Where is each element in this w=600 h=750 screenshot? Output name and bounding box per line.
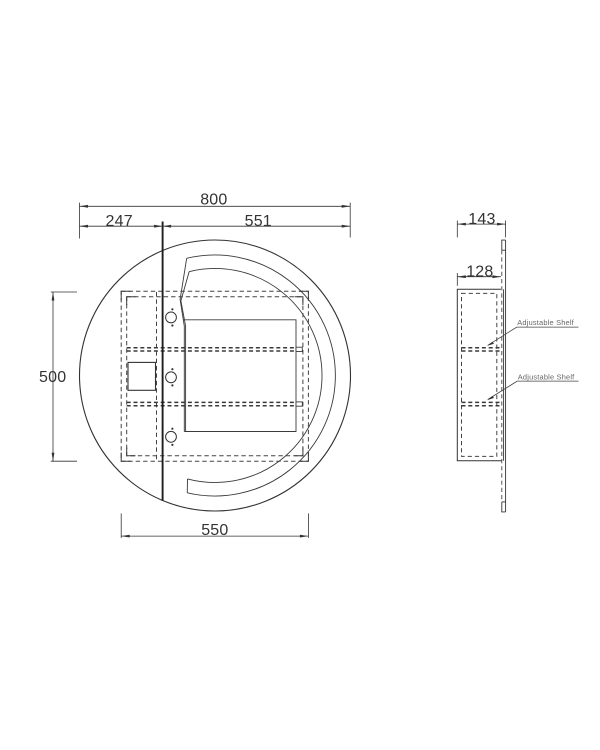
svg-text:128: 128: [466, 263, 493, 280]
svg-text:143: 143: [468, 211, 495, 228]
svg-text:551: 551: [245, 213, 272, 230]
svg-text:500: 500: [39, 369, 66, 386]
svg-text:Adjustable Shelf: Adjustable Shelf: [517, 318, 574, 327]
svg-text:247: 247: [106, 213, 133, 230]
svg-text:Adjustable Shelf: Adjustable Shelf: [518, 372, 575, 381]
svg-text:800: 800: [200, 192, 227, 209]
svg-text:550: 550: [201, 522, 228, 539]
